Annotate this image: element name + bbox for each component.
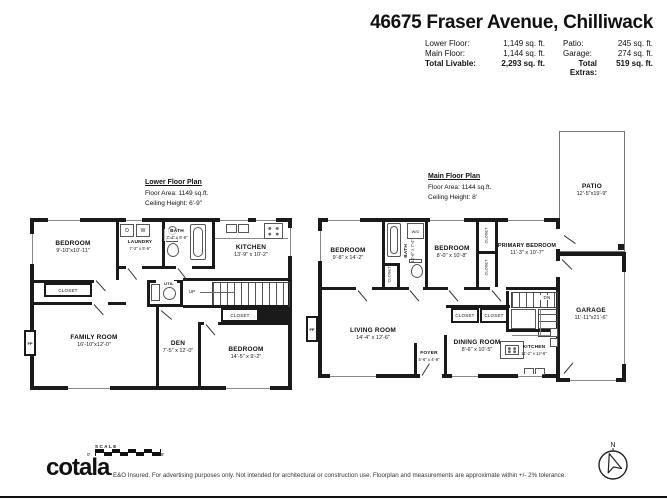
water-heater-icon <box>163 287 176 300</box>
window <box>508 218 544 222</box>
furnace-icon <box>151 284 160 301</box>
window <box>570 378 616 382</box>
room-dims: 7'-2" x 5'-6" <box>116 246 164 251</box>
room-dims: 11'-3" x 10'-7" <box>496 250 558 257</box>
lower-plan-area: Floor Area: 1149 sq.ft. <box>145 189 208 198</box>
appliance-icon <box>550 328 558 337</box>
wall <box>318 287 356 290</box>
room-label-bedroom: BEDROOM 9'-10"x10'-11" <box>34 240 112 256</box>
compass-north-label: N <box>610 442 615 449</box>
room-name: DEN <box>158 340 198 348</box>
closet-label: CLOSET <box>484 313 503 318</box>
closet-label: CLOSET <box>484 248 489 288</box>
wall <box>162 266 176 269</box>
wall <box>218 322 288 325</box>
room-label-living-room: LIVING ROOM 14'-4" x 12'-6" <box>328 327 418 343</box>
room-dims: 9'-8" x 14'-2" <box>320 255 376 262</box>
window <box>48 218 80 222</box>
floorplan-page: { "header": { "title": "46675 Fraser Ave… <box>0 0 667 500</box>
lower-plan-ceiling: Ceiling Height: 6'-9" <box>145 199 208 208</box>
wall <box>147 280 156 283</box>
wall <box>147 304 183 307</box>
room-dims: 7'-5" x 12'-0" <box>158 348 198 355</box>
stat-label-total: Total Extras: <box>563 59 597 77</box>
window <box>288 228 292 256</box>
room-dims: 11'-11"x21'-6" <box>560 315 622 322</box>
main-floor-plan: PATIO 12'-5"x19'-9" GARAGE 11'-11"x21'-6… <box>312 95 632 395</box>
area-stats-table: Lower Floor: 1,149 sq. ft. Patio: 245 sq… <box>425 39 653 77</box>
stairs-up-label: UP <box>185 289 199 294</box>
fireplace-label: FP <box>309 327 314 332</box>
window <box>330 374 376 378</box>
wall <box>108 302 126 305</box>
stair-landing <box>511 309 536 329</box>
wall <box>192 266 215 269</box>
lower-plan-heading: Lower Floor Plan Floor Area: 1149 sq.ft.… <box>145 178 208 208</box>
dryer-icon: D <box>120 224 134 237</box>
stat-label-total: Total Livable: <box>425 59 476 77</box>
closet: CLOSET <box>221 308 259 322</box>
patio-post <box>618 244 624 250</box>
room-dims: 16'-10"x12'-0" <box>44 342 144 349</box>
room-name: BEDROOM <box>34 240 112 248</box>
util-label: UTIL <box>161 281 177 286</box>
dryer-label: D <box>125 228 129 234</box>
scale-end: 8' <box>161 452 164 457</box>
lower-floor-plan: UP CLOSET CLOSET FP D W UTIL <box>30 218 292 390</box>
wall <box>423 287 448 290</box>
room-dims: 10'-6" x 7'-4" <box>410 225 415 277</box>
garage-door-opening <box>556 261 560 277</box>
page-title: 46675 Fraser Avenue, Chilliwack <box>370 12 653 34</box>
room-name: BEDROOM <box>424 245 480 253</box>
header: 46675 Fraser Avenue, Chilliwack Lower Fl… <box>370 12 653 77</box>
window <box>226 386 270 390</box>
compass-icon: N <box>594 438 632 489</box>
wall <box>397 263 400 287</box>
room-name: DINING ROOM <box>448 339 506 347</box>
room-label-bath: BATH 7'-4" x 5'-6" <box>164 229 190 241</box>
toilet-icon <box>167 243 179 257</box>
wall <box>382 222 385 287</box>
lower-plan-title: Lower Floor Plan <box>145 178 208 188</box>
room-label-patio: PATIO 12'-5"x19'-9" <box>562 183 622 199</box>
wall <box>147 280 150 307</box>
window <box>452 374 478 378</box>
closet-label: CLOSET <box>387 255 392 295</box>
room-label-primary-bedroom: PRIMARY BEDROOM 11'-3" x 10'-7" <box>496 243 558 257</box>
sink-icon <box>226 224 237 233</box>
stove-icon <box>264 223 283 239</box>
page-bottom-rule <box>0 496 667 498</box>
room-label-bedroom: BEDROOM 8'-0" x 10'-8" <box>424 245 480 261</box>
stat-value: 245 sq. ft. <box>618 39 653 48</box>
bathtub-icon <box>387 223 401 257</box>
staircase-up <box>212 282 290 307</box>
under-stair-wall <box>259 308 288 322</box>
room-label-bath: BATH 10'-6" x 7'-4" <box>404 225 416 277</box>
wall <box>506 329 556 332</box>
closet-label: CLOSET <box>455 313 474 318</box>
room-dims: 12'-5"x19'-9" <box>562 191 622 198</box>
room-dims: 14'-4" x 12'-6" <box>328 335 418 342</box>
stairs-down-label: DN <box>540 295 554 300</box>
wall <box>506 287 560 290</box>
window <box>256 218 276 222</box>
closet: CLOSET <box>480 308 508 323</box>
closet: CLOSET <box>451 308 479 323</box>
brand-mark: . <box>109 464 111 478</box>
fireplace-label: FP <box>27 341 32 346</box>
room-name: GARAGE <box>560 307 622 315</box>
room-name: PRIMARY BEDROOM <box>496 243 558 250</box>
room-name: KITCHEN <box>215 244 287 252</box>
room-label-kitchen: KITCHEN 13'-9" x 10'-2" <box>215 244 287 260</box>
stat-value-total: 2,293 sq. ft. <box>501 59 545 77</box>
room-label-garage: GARAGE 11'-11"x21'-6" <box>560 307 622 323</box>
window <box>68 386 110 390</box>
wall <box>198 325 201 386</box>
room-dims: 14'-5" x 9'-2" <box>208 354 284 361</box>
bathtub-icon <box>190 224 206 260</box>
stat-value: 274 sq. ft. <box>618 49 653 58</box>
window <box>328 218 360 222</box>
room-label-dining-room: DINING ROOM 8'-6" x 10'-5" <box>448 339 506 355</box>
room-dims: 13'-9" x 10'-2" <box>215 252 287 259</box>
stat-label: Patio: <box>563 39 583 48</box>
window <box>518 374 542 378</box>
room-name: FAMILY ROOM <box>44 334 144 342</box>
closet-label: CLOSET <box>230 313 249 318</box>
wall <box>183 278 288 281</box>
room-label-bedroom: BEDROOM 14'-5" x 9'-2" <box>208 346 284 362</box>
stair-arrow <box>200 292 234 293</box>
washer-label: W <box>141 228 146 234</box>
fireplace: FP <box>24 330 36 356</box>
room-name: LIVING ROOM <box>328 327 418 335</box>
disclaimer-text: E&O Insured. For advertising purposes on… <box>113 472 633 479</box>
window <box>220 218 248 222</box>
room-label-den: DEN 7'-5" x 12'-0" <box>158 340 198 356</box>
wall <box>116 266 126 269</box>
stat-value: 1,149 sq. ft. <box>503 39 545 48</box>
stat-label: Garage: <box>563 49 592 58</box>
counter-line <box>540 309 541 335</box>
garage-door <box>622 272 626 364</box>
stat-value-total: 519 sq. ft. <box>616 59 653 77</box>
room-label-family-room: FAMILY ROOM 16'-10"x12'-0" <box>44 334 144 350</box>
washer-icon: W <box>136 224 150 237</box>
room-dims: 11'-2" x 12'-6" <box>508 351 560 356</box>
room-name: BEDROOM <box>208 346 284 354</box>
room-name: BEDROOM <box>320 247 376 255</box>
wall <box>180 280 183 307</box>
wall <box>34 302 92 305</box>
stat-label: Main Floor: <box>425 49 465 58</box>
room-label-foyer: FOYER 5'-6" x 4'-8" <box>410 351 448 363</box>
stat-value: 1,144 sq. ft. <box>503 49 545 58</box>
closet: CLOSET <box>44 283 92 297</box>
room-dims: 5'-6" x 4'-8" <box>410 357 448 362</box>
room-dims: 8'-6" x 10'-5" <box>448 347 506 354</box>
room-dims: 7'-4" x 5'-6" <box>164 235 190 240</box>
entry-door-opening <box>420 374 442 378</box>
room-label-laundry: LAUNDRY 7'-2" x 5'-6" <box>116 240 164 252</box>
fireplace: FP <box>306 316 318 342</box>
room-dims: 9'-10"x10'-11" <box>34 248 112 255</box>
room-label-bedroom: BEDROOM 9'-8" x 14'-2" <box>320 247 376 263</box>
brand-logo: cotala. <box>46 454 112 482</box>
room-dims: 8'-0" x 10'-8" <box>424 253 480 260</box>
closet-label: CLOSET <box>58 288 77 293</box>
stat-label: Lower Floor: <box>425 39 469 48</box>
window <box>430 218 464 222</box>
window <box>126 218 142 222</box>
brand-name: cotala <box>46 454 109 481</box>
room-label-kitchen: KITCHEN 11'-2" x 12'-6" <box>508 345 560 357</box>
sink-icon <box>238 224 249 233</box>
room-name: PATIO <box>562 183 622 191</box>
